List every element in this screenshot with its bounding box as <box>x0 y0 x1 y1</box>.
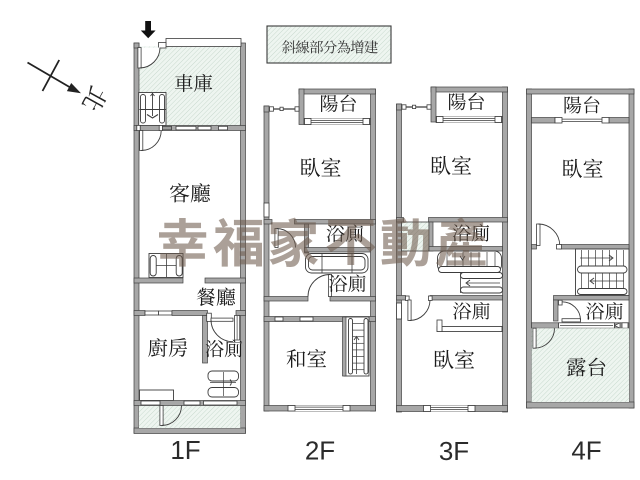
svg-text:3F: 3F <box>439 436 469 466</box>
svg-text:1F: 1F <box>170 435 200 465</box>
svg-text:4F: 4F <box>571 436 601 466</box>
svg-text:2F: 2F <box>305 436 335 466</box>
